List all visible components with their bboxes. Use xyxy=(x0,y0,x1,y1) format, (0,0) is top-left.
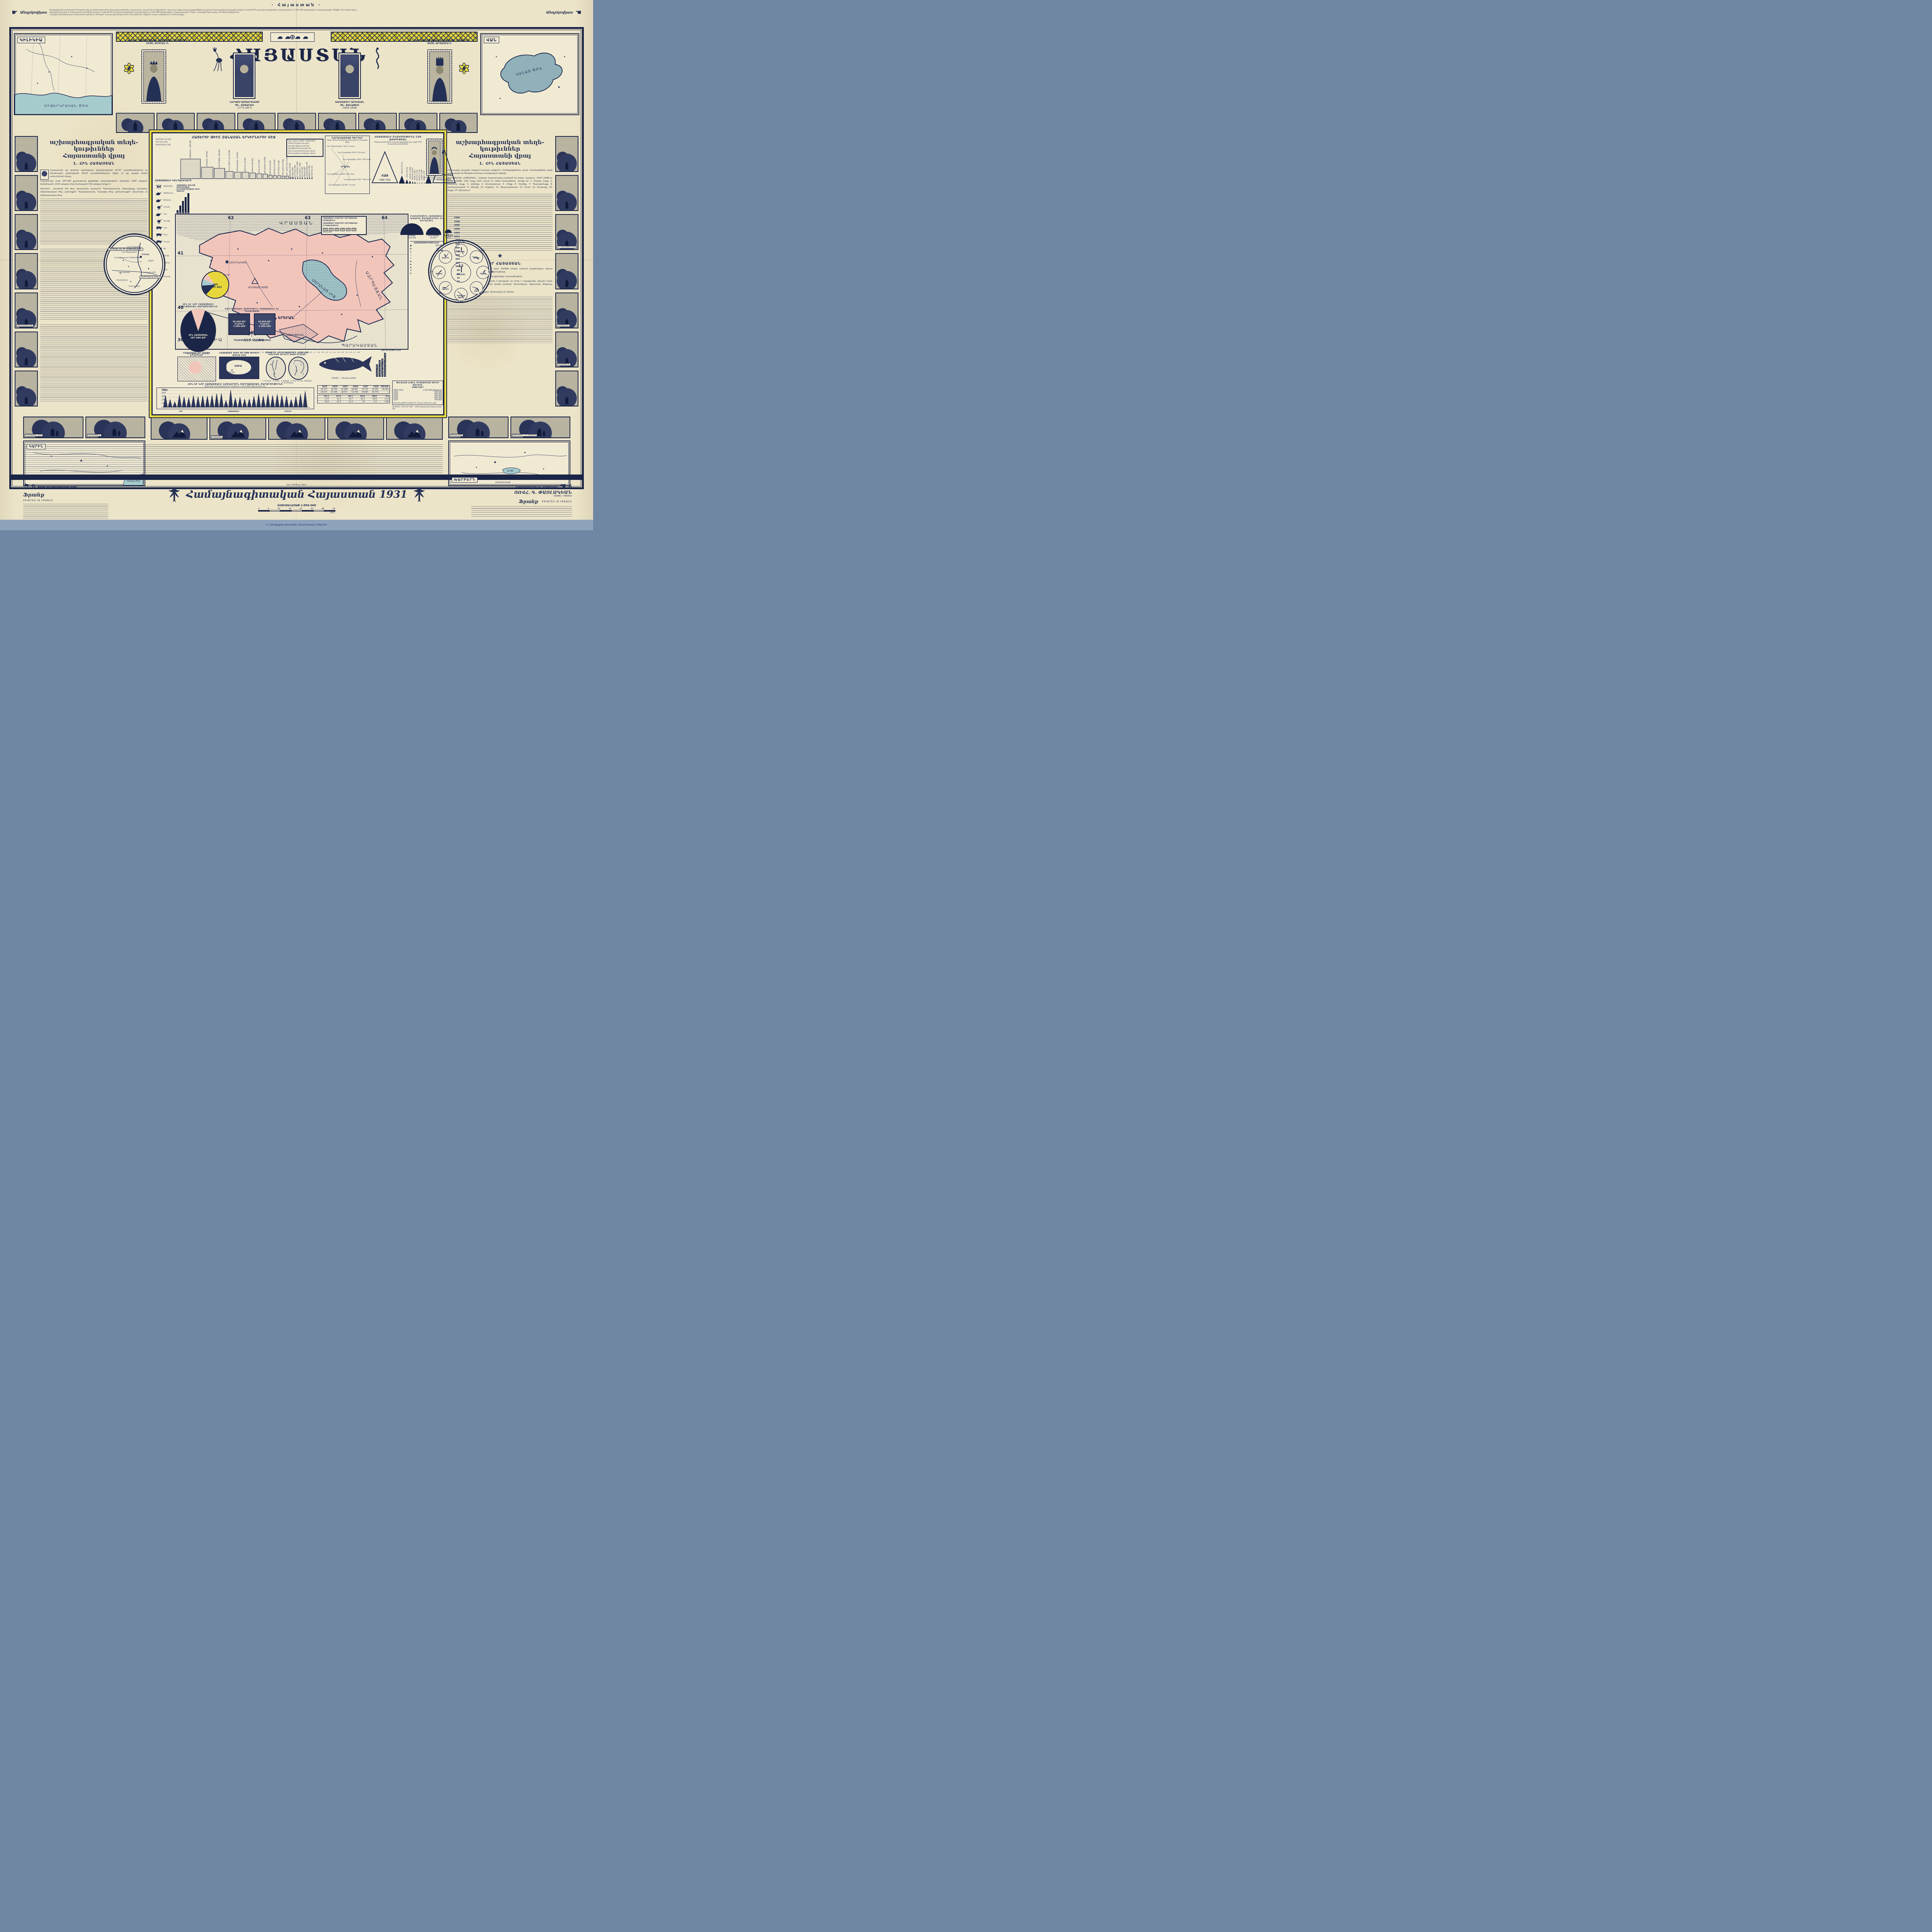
pop-square: ԻՏԱԼԻԱ 600 xyxy=(304,167,306,179)
svg-text:4000: 4000 xyxy=(162,392,166,394)
bottom-text-texture xyxy=(23,444,443,474)
note-label-left: Անդրկովկաս xyxy=(20,11,47,15)
karin-title: ԿԱՐԻՆ xyxy=(27,444,46,449)
pointing-hand-icon: ☛ xyxy=(12,9,18,16)
nakhichevan-label: ՆԱԽԻՋԵՒԱՆ xyxy=(286,333,304,337)
sheet-top-title: · Հայաստան · xyxy=(0,2,593,7)
svg-text:ՀԱՅ: ՀԱՅ xyxy=(381,174,388,177)
height-value: 2496 xyxy=(448,216,460,220)
pop-square: ՖՐԱՆՍԱ 70.000 xyxy=(257,160,262,179)
world-clock-circle: 12ԵՐԵՒԱՆԹԵՀՐԱՆ12.25ՓԷՔԻՆ4.45ՊԱՔՈՒ1.20ՆԻՒ… xyxy=(428,240,492,303)
bird-ornament xyxy=(270,32,315,42)
nationality-chart: ՀԱՅԱՍՏԱՆԻ ԲՆԱԿՉՈՒԹԻՒՆԸ ԸՍՏ ԱԶԳՈՒԹԵԱՆ (Հա… xyxy=(371,136,425,184)
map-sheet: · Հայաստան · ☛ Անդրկովկաս Անդրկովկասի խո… xyxy=(0,0,593,520)
side-note-line: ՍԵՐՊԻԱ 200 xyxy=(156,141,180,144)
step-bar: Շիրակի դաշտ 1500 մեթր xyxy=(381,359,383,377)
height-value: 2186 xyxy=(448,220,460,224)
pop-square: ԻՐԱՔ 6.000 xyxy=(292,167,294,179)
engraving-tile xyxy=(116,113,155,133)
height-value: 863 xyxy=(448,239,460,243)
subhead-old-armenia: 1. ՀԻՆ ՀԱՅԱՍՏԱՆ xyxy=(40,162,148,166)
place-label: Վաղարշապատ (Էջմիածին) xyxy=(114,257,140,259)
peacock-icon xyxy=(208,47,228,72)
svg-text:64: 64 xyxy=(382,215,388,220)
city-semicircle: ԼԵՆԻՆԱԿԱՆ43.657 xyxy=(426,227,441,239)
place-label: Նոր Սեբաստիա xyxy=(122,252,137,253)
height-value: 2086 xyxy=(448,224,460,228)
bottom-engraving-strip: Շողակաթ xyxy=(151,417,443,440)
corner-map-cilicia: ԿԻԼԻԿԻԱ ՄԻՋԵՐԿՐԱԿԱՆ ԾՈՎ xyxy=(14,33,113,115)
photo-nerses xyxy=(233,53,255,99)
svg-text:ԱՐԱԳԱԾ 4095: ԱՐԱԳԱԾ 4095 xyxy=(248,286,268,289)
printed-in-france: PRINTED IN FRANCE xyxy=(23,499,120,502)
yerevan-environs-circle: ԵՐԵՒԱՆ ԵՒ ԻՐ ՇՐՋԱԿԱՆԵՐԸ ԵՐԵՒԱՆ Վաղարշապա… xyxy=(104,233,165,295)
clock-7: ՍՕՖԻԱ xyxy=(432,266,446,279)
pop-square: ԱԶՐՊԷՅՃԱՆ 280.000 xyxy=(214,150,225,179)
pop-square: ԵԳԻՊՏՈՍ 27.000 xyxy=(277,160,281,179)
central-map-block: ՁՈՒԻՑԵՐԻԱ 250ՍԵՐՊԻԱ 200ԱՒՍՏՐԱԼԻԱ 200 ՀԱՅ… xyxy=(151,132,444,415)
stamp-tigran xyxy=(141,49,166,104)
svg-text:2: 2 xyxy=(301,364,302,366)
right-engraving-rail: Ս. Կարապետ Մուշ Նարեկայ վ. Վարագայ վ. xyxy=(555,136,578,406)
scale-bar: 08162432404856 ՔԼՄ. xyxy=(258,508,335,514)
svg-text:4: 4 xyxy=(274,372,275,376)
pop-square: ՀԱՅԱՍՏԱՆ 1.000.000 xyxy=(180,140,201,179)
engraving-tile xyxy=(555,371,578,406)
karin-sea-label: Վանայ ծով xyxy=(127,480,140,482)
franc-script: Ֆրանք xyxy=(23,492,120,498)
pop-square: ԿԻՊՐՈՍ 4.000 xyxy=(294,165,296,179)
svg-text:63: 63 xyxy=(305,215,311,220)
corner-map-van: ՎԱՆ ՎԱՆԱՅ ԾՈՎ xyxy=(480,33,579,115)
place-label: Նորագաւիթ xyxy=(119,272,130,274)
height-value: 648 xyxy=(448,254,460,258)
nationality-triangle: ԱՍՈՐԻ 3.129 xyxy=(418,170,420,184)
population-pie: ՀԱՅ2.547.663 253.363 xyxy=(199,271,231,299)
pop-square: ՎՐԱՍՏԱՆ 350.000 xyxy=(201,151,213,179)
pop-square: ՊԱՂԵՍՏԻՆ 1.000 xyxy=(299,163,301,179)
engraving-tile xyxy=(555,136,578,172)
animal-item: Թիթեռնիկ xyxy=(155,184,175,189)
height-value: 1093 xyxy=(448,231,460,235)
stats-table: 192319241925192619271928ԳՈՒՄԱՐ 39.77339.… xyxy=(317,385,390,403)
pop-square: ՀԱՐ. ԱՄԵՐԻԿԱ 22.000 xyxy=(286,156,289,179)
scan-backdrop: · Հայաստան · ☛ Անդրկովկաս Անդրկովկասի խո… xyxy=(0,0,593,530)
stamp-artashes-caption: Բ. ՀԱՅ ՊԱՏՄՈՒԹԵԱՆ ՄԵԾԱԳՈՅՆ ԴԷՄՔԵՐԷՆՄԵԾՆ … xyxy=(402,39,478,45)
side-note-line: ԱՒՍՏՐԱԼԻԱ 200 xyxy=(156,144,180,147)
pop-square: ԹՈՒՐՔԻԱ 33.663 xyxy=(269,160,272,179)
engraving-tile xyxy=(15,332,38,367)
pop-square: ՀԱԲԷՇԻՍՏԱՆ 500 xyxy=(306,162,308,179)
left-paragraph: ՍԱՀՄԱՆ.- Հիւսիսէն Սեւ ծով, Վրաստան, հարա… xyxy=(40,187,148,197)
engraving-tile xyxy=(237,113,276,133)
credit-text-texture xyxy=(23,504,108,519)
engraving-tile xyxy=(197,113,235,133)
main-title-row: ՀԱՅԱՍՏԱՆ xyxy=(151,46,443,72)
sevan-fish-table: ՍԵՒԱՆԱՅ ԼԻՃԷՆ ՈՐՍԱՑՈՒԱԾ ՁՈՒԿԻ ՔԱՆԱԿԸ 190… xyxy=(392,381,443,410)
agro-zones: ՀԱՅԱՍՏԱՆԻ ՄԷՋ ԸՍՏ ԲԱՐՁՐՈՒԹԵԱՆ ԵՐԿՐԱԳՈՐԾՈ… xyxy=(177,184,204,218)
stamp-tigran-caption: Ա. ՀԱՅ ՊԱՏՄՈՒԹԵԱՆ ՄԵԾԱԳՈՅՆ ԴԷՄՔԵՐԷՆՄԵԾՆ … xyxy=(123,39,192,45)
rim-time: 9.08 xyxy=(437,292,442,294)
animal-icon xyxy=(155,204,163,210)
woman-stamp-caption: Հայաստանցի հայուհի՝ հայ տարազով xyxy=(423,177,445,180)
mountain-heights-list: 2496218620861509109310718638368006766486… xyxy=(448,216,460,284)
pop-square: ՊՈՒԼԿԱՐԻԱ 23.000 xyxy=(282,159,285,179)
rim-time: 4.45 xyxy=(479,250,485,252)
height-value: 80 xyxy=(448,269,460,273)
credit-text-texture xyxy=(471,506,572,518)
nationality-triangle: ՌՈՒՍ 20.526 xyxy=(405,167,408,184)
globes-figure: ԱՇԽԱՐՀԻ ՀԻՆԳ ՄԱՍԵՐՈՒՆ ՎՐԱՅ ՀԱՅ ԳՏՆՈՒԱԾ Տ… xyxy=(262,352,312,384)
animal-icon xyxy=(155,184,163,189)
left-paragraph: Հայաստան ունի 187.000 քառակուսի քիլօմեթր… xyxy=(40,180,148,186)
cilicia-title: ԿԻԼԻԿԻԱ xyxy=(17,37,45,43)
place-label: Ուլուխանլու xyxy=(129,286,140,287)
scale-unit: ՔԼՄ. xyxy=(258,512,335,514)
engraving-tile xyxy=(327,417,384,440)
engraving-tile xyxy=(555,253,578,289)
engraving-tile xyxy=(151,417,207,440)
collection-copyright: © Cartography Associates, David Rumsey C… xyxy=(266,524,327,526)
flag-hand-icon: ⚑ xyxy=(23,483,29,490)
animal-icon xyxy=(155,197,163,203)
step-bar: Արարատի դաշտ 2000 մեթր xyxy=(384,353,386,377)
rim-time: 1.34 xyxy=(428,271,433,273)
circle-scale: ԱՍՏԻՃԱՆԱՉԱՓ xyxy=(139,276,160,279)
rosette-icon xyxy=(457,62,471,77)
engraving-tile: Ախուրեանի ձոր xyxy=(15,293,38,328)
engraving-tile xyxy=(268,417,325,440)
rim-time: 1.20 xyxy=(488,271,493,273)
dropcap-figure xyxy=(40,170,49,180)
pop-square: ՊԱՐՍԿԱՍՏԱՆ 120.000 xyxy=(234,152,241,179)
author-name: ՅՈՎՀ. Գ. ՓԱՅԼԱԿԵԱՆ xyxy=(460,490,572,495)
mediterranean-label: ՄԻՋԵՐԿՐԱԿԱՆ ԾՈՎ xyxy=(44,104,88,107)
clock-5: ՊՈՒԷՆՈՍ ԱՅՐԷՍ xyxy=(454,288,468,301)
pointing-hand-icon: ☚ xyxy=(575,9,582,16)
height-value: 400 xyxy=(448,265,460,269)
lakes-rivers-panel: ՀԱՅԱՍՏԱՆԻ ԼԻՃԵՐՈՒՆ ԲԱՂԴԱՏԱԿԱՆ ՄԵԾՈՒԹԻՒՆԸ… xyxy=(321,216,367,235)
eagle-icon xyxy=(168,487,181,502)
photo-abovian-caption: ԽԱՉԱՏՈՒՐ ԱԲՈՎԵԱՆ ԾՆ. ՔԱՆԱՔԵՌ (1805-1848) xyxy=(325,100,375,110)
dense-text-texture xyxy=(40,325,148,402)
svg-text:780.750: 780.750 xyxy=(379,179,391,182)
height-value: 676 xyxy=(448,250,460,254)
left-engraving-rail: Ախուրեանի ձոր xyxy=(15,136,38,406)
right-paragraph: ՔԱՂԱՔԱԿԱՆ ՀԱՅԱՍՏԱՆ.- Հայերը Հայաստանը բա… xyxy=(447,177,553,192)
van-title: ՎԱՆ xyxy=(484,37,499,43)
height-value: 483 xyxy=(448,262,460,265)
svg-text:ԼԵՆԻՆԱԿԱՆ: ԼԵՆԻՆԱԿԱՆ xyxy=(230,261,247,264)
pop-abroad-title: ՀԱՅԵՐՈՒ ԹԻՒԸ ԶԱՆԱԶԱՆ ԵՐԿԻՐՆԵՐՈՒ ՄԷՋ xyxy=(176,136,292,139)
step-bar: Երեւան 1042 մեթր xyxy=(376,364,378,377)
yerevan-label: ԵՐԵՒԱՆ xyxy=(142,254,149,256)
animals-title: ՀԱՅԱՍՏԱՆԻ ԿԵՆԴԱՆԻՆԵՐԸ xyxy=(155,179,201,182)
top-note: ☛ Անդրկովկաս Անդրկովկասի խորհրդային Միու… xyxy=(12,9,582,17)
mountain-profile-chart: Հ­ԻՆ ԵՒ ՆՈՐ ՀԱՅԱՍՏԱՆԻ ԼԵՌՆԵՐՈՒՆ ԲԱՂԴԱՏԱԿ… xyxy=(156,383,314,413)
engraving-tile xyxy=(318,113,357,133)
rim-time: 4.47 xyxy=(479,292,485,294)
pop-square: ՔԱՆԱՏԱ 10.000 xyxy=(289,163,291,179)
svg-text:3: 3 xyxy=(296,370,298,372)
animal-item: Ճնճղուկ xyxy=(155,197,175,203)
engraving-tile xyxy=(439,113,478,133)
engraving-tile xyxy=(15,214,38,250)
step-bar: Լոռիի դաշտ 1400 մեթր xyxy=(379,360,381,377)
serpent-icon xyxy=(370,47,385,72)
engraving-tile: Սանահինի վ. xyxy=(85,417,146,438)
rim-time: 11.06 xyxy=(437,250,443,252)
animal-item: Հաւ xyxy=(155,211,175,217)
subhead-old-armenia: 1. ՀԻՆ ՀԱՅԱՍՏԱՆ xyxy=(447,162,553,166)
engraving-tile xyxy=(555,175,578,211)
sevan-trout: ԻՇԽԱՆ — Սեւանայ լիճէն xyxy=(315,352,373,379)
pop-square: ՍՈՒՐԻԱ 120.000 xyxy=(242,158,249,179)
woman-stamp xyxy=(426,139,442,176)
pop-abroad-chart: ՀԱՅԱՍՏԱՆ 1.000.000ՎՐԱՍՏԱՆ 350.000ԱԶՐՊԷՅՃ… xyxy=(180,140,284,179)
svg-text:41: 41 xyxy=(178,250,184,255)
nationality-triangle: ԵԶԻՏԻ 12.849 xyxy=(409,167,411,184)
bottom-main-title: Համայնագիտական Հայաստան 1931 xyxy=(186,489,407,500)
pop-square: ՌՈՒՍԻԱ 100.000 xyxy=(250,158,256,179)
left-paragraph: Հայաստան կը գտնուի արեւելեան երկայնութեա… xyxy=(40,169,148,178)
engraving-tile xyxy=(156,113,195,133)
nationality-triangle: ՅՈՅՆ 5.295 xyxy=(414,170,416,184)
note-label-right: Անդրկովկաս xyxy=(546,11,573,15)
clock-3: ՊԱՔՈՒ xyxy=(476,266,490,279)
place-label: Սարվանլար xyxy=(116,279,128,281)
animal-icon xyxy=(155,211,163,217)
georgia-label: ՎՐԱՍՏԱՆ xyxy=(279,220,314,226)
note-text: Անդրկովկասի խորհրդային Միութեան մէջ կը մ… xyxy=(49,9,544,17)
photo-nerses-caption: ՆԵՐՍԷՍ ԱՇՏԱՐԱԿԵՑԻ ԾՆ. ԱՇՏԱՐԱԿ (1770-1857… xyxy=(219,100,270,110)
animal-item: Կռունկ xyxy=(155,204,175,210)
height-value: 800 xyxy=(448,247,460,250)
kharberd-title: ԽԱՐԲԵՐԴ xyxy=(452,477,478,483)
height-value: 65 xyxy=(448,273,460,277)
villages-diagram: ԵՐԵՒԱՆ Նոր Սեբաստիա 7 ՔՄ. 6 տուն Նոր Մալ… xyxy=(326,143,369,193)
engraving-tile: ԷՋՄԻԱԾԻՆ · Ս. Գայիանէ xyxy=(510,417,571,438)
bottom-title-group: Imp. Dufrénoy, Paris. Համայնագիտական Հայ… xyxy=(166,484,427,514)
height-value: 1071 xyxy=(448,235,460,239)
animal-item: Ծիծեռնակ xyxy=(155,190,175,196)
animal-icon xyxy=(155,190,163,196)
place-label: Նուպարաշէն xyxy=(143,272,156,274)
engraving-tile: Շողակաթ xyxy=(209,417,266,440)
city-semicircle: ԵՐԵՒԱՆ100.000 xyxy=(400,223,423,239)
place-label: Նոր Մալաթիա xyxy=(127,246,141,248)
plate-number: 6 xyxy=(568,484,572,490)
rosette-icon xyxy=(122,62,136,77)
franc-script: Ֆրանք xyxy=(519,499,538,504)
animal-item: Կով xyxy=(155,225,175,231)
plate-number: 6 xyxy=(32,484,35,490)
fish-row: 1927700.800 xyxy=(393,399,442,401)
svg-text:ՄԵԹՐ: ՄԵԹՐ xyxy=(162,389,168,392)
pop-square: ՃԱՓՈՆԻԱ 300 xyxy=(309,165,310,179)
photo-abovian xyxy=(338,53,361,99)
rim-time: 4.52 xyxy=(458,301,463,303)
pop-square: ԱՆԳԼԻԱ 700 xyxy=(302,167,303,179)
nationality-triangle: ԹՈՒՐՔ 78.714 xyxy=(399,162,405,184)
engraving-tile: Ս. Կարապետ Մուշ xyxy=(555,214,578,250)
nationality-triangle: ՔԻՒՐՏ 3.176 xyxy=(416,170,418,184)
scale-label: ԱՍՏԻՃԱՆԱՉԱՓ 1:850.000 xyxy=(166,504,427,507)
nationality-triangle: ՎՐԱՑԻ 2.967 xyxy=(421,169,423,184)
clock-2: ՓԷՔԻՆ xyxy=(470,250,483,264)
engraving-tile xyxy=(15,175,38,211)
pop-square: ՀՆԴԿԱՍՏԱՆ 2.000 xyxy=(297,162,298,179)
pop-square: ՌՈՒՄԱՆԻԱ 30.000 xyxy=(273,160,277,179)
printer-line: Imp. Dufrénoy, Paris. xyxy=(166,484,427,486)
engraving-tile xyxy=(15,253,38,289)
br-engravings: Սեւան կղզի ԷՋՄԻԱԾԻՆ · Ս. Գայիանէ xyxy=(448,417,570,438)
engraving-tile xyxy=(386,417,443,440)
height-value: 603 xyxy=(448,258,460,262)
printed-in-france: PRINTED IN FRANCE xyxy=(542,500,572,503)
engraving-tile: Վարագայ վ. xyxy=(555,332,578,367)
svg-text:4: 4 xyxy=(270,363,272,366)
engraving-tile: Սեւան կղզի xyxy=(448,417,509,438)
animal-icon xyxy=(155,218,163,224)
animal-icon xyxy=(155,225,163,231)
asia-dot-map: ՀԱՅԱՍՏԱՆ ԿԷՏԻ ՄԸ ՉԱՓ ԿԵՐԵՒԻ ԱՍԻՈՅ ՄԷՋ ԱՍ… xyxy=(219,352,259,379)
legend-row: ●100.000 xyxy=(410,244,443,247)
engraving-tile: Գոշավանք · ԱՆԻ xyxy=(23,417,83,438)
old-new-area-compare: ՀԻՆ ԵՒ ՆՈՐ ՀԱՅԱՍՏԱՆԻ ԲԱՂԴԱՏԱԿԱՆ ՏԱՐԱԾՈՒԹ… xyxy=(177,303,219,355)
height-value: 836 xyxy=(448,243,460,247)
height-value: 15 xyxy=(448,280,460,284)
pop-square: ԱՒՍՏՐԻԱ 250 xyxy=(311,166,313,179)
engraving-tile xyxy=(15,136,38,172)
bottom-left-credit: ⚑ 6 գտնել աշխարհագոյցին վրայ Ֆրանք PRINT… xyxy=(23,483,120,519)
bottom-band-rule xyxy=(11,474,582,480)
dense-text-texture xyxy=(447,297,553,343)
right-paragraph: Մուշտակը առաջին անգամ Եւրոպա անցած է հռո… xyxy=(447,169,553,175)
pointing-hand-icon: ☚ xyxy=(560,483,566,490)
animal-item: Արագիլ xyxy=(155,218,175,224)
height-value: 25 xyxy=(448,277,460,281)
svg-text:5: 5 xyxy=(303,373,304,376)
engraving-tile xyxy=(399,113,437,133)
poem-note-box: Երբ ալեւոր ՄԱՅՐ ՀԱՅԱՍՏԱՆՏեսնէ զորդիս իւր… xyxy=(286,139,323,157)
belgium-compare: ԲԱՂԴԱՏԱԿԱՆ ՄԵԾՈՒԹԻՒՆ ՀԱՅԱՍՏԱՆԻ ԵՒ ՊԵԼՃԻՔ… xyxy=(223,308,281,342)
pop-square: ՀԻՒՍ. ԱՄԵՐԻԿԱ 150.000 xyxy=(226,150,233,179)
top-engraving-strip xyxy=(116,113,478,133)
nationality-triangle: ՓԱՐՍԻԿ 6.927 xyxy=(412,167,413,184)
plains-heights: ԲԱՐՁՐՈՒԹԻՒՆՆԵՐ Երեւան 1042 մեթրԼոռիի դաշ… xyxy=(376,350,407,377)
bl-engravings: Գոշավանք · ԱՆԻ Սանահինի վ. xyxy=(23,417,145,438)
engraving-tile xyxy=(358,113,397,133)
place-label: Զրվէժ xyxy=(148,260,154,262)
address-note: [SEINE] · FRANCE xyxy=(460,495,572,497)
nationality-triangle: ՀԱՅ780.750 xyxy=(371,151,398,184)
svg-text:1: 1 xyxy=(293,362,295,365)
height-value: 1509 xyxy=(448,228,460,231)
engraving-tile: Նարեկայ վ. xyxy=(555,293,578,328)
pop-chart-side-note: ՁՈՒԻՑԵՐԻԱ 250ՍԵՐՊԻԱ 200ԱՒՍՏՐԱԼԻԱ 200 xyxy=(156,139,180,147)
eagle-icon xyxy=(413,487,426,502)
scan-bottom-band: © Cartography Associates, David Rumsey C… xyxy=(0,520,593,530)
new-villages-box: ՆՈՐԱԿԱՌՈՅՑ ԳԻՒՂԵՐ Դիրք, հեռաւորութիւնը Ե… xyxy=(325,136,370,194)
persia-label: ՊԱՐՍԿԱՍՏԱՆ xyxy=(342,344,378,348)
neighbors-minimap: ՀԱՅԱՍՏԱՆ ԵՒ ԴՐԱՑԻ ԵՐԿԻՐՆԵՐ xyxy=(177,352,216,381)
svg-text:62: 62 xyxy=(228,215,234,220)
pop-square: ՅՈՒՆԱՍՏԱՆ 60.000 xyxy=(263,157,268,179)
engraving-tile xyxy=(277,113,316,133)
bottom-right-credit: Համախմբեց եւ գծագրեց ☚ 6 ՅՈՎՀ. Գ. ՓԱՅԼԱԿ… xyxy=(460,483,572,518)
stamp-artashes xyxy=(427,49,452,104)
engraving-tile xyxy=(15,371,38,406)
